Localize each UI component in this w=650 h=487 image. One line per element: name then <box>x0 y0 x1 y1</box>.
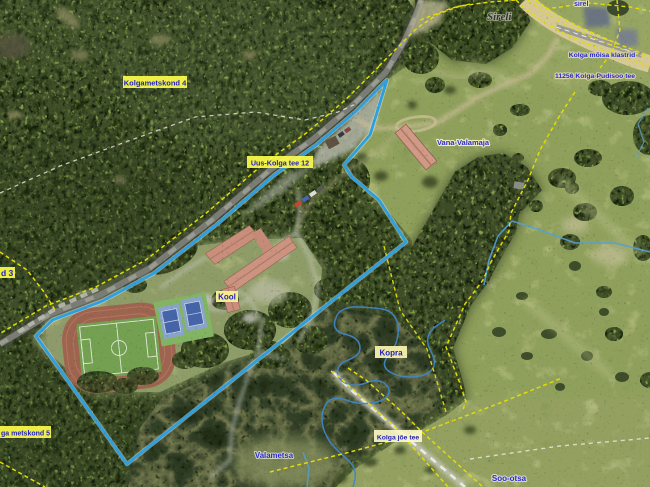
svg-text:sirel: sirel <box>574 1 588 8</box>
svg-text:Kolgametskond 4: Kolgametskond 4 <box>124 79 187 88</box>
svg-text:Sireli: Sireli <box>487 11 512 23</box>
svg-text:11256 Kolga-Pudisoo tee: 11256 Kolga-Pudisoo tee <box>555 73 635 80</box>
svg-text:Soo-otsa: Soo-otsa <box>492 474 527 483</box>
svg-text:Uus-Kolga tee 12: Uus-Kolga tee 12 <box>251 159 309 168</box>
svg-text:Kolga mõisa klastrid: Kolga mõisa klastrid <box>569 52 635 59</box>
svg-text:d 3: d 3 <box>1 268 14 278</box>
svg-text:Vana-Valamaja: Vana-Valamaja <box>437 138 490 147</box>
svg-text:Kolga jõe tee: Kolga jõe tee <box>377 435 420 442</box>
svg-text:ga metskond 5: ga metskond 5 <box>1 431 50 438</box>
svg-text:Valametsa: Valametsa <box>255 451 294 460</box>
svg-text:Kopra: Kopra <box>379 349 403 358</box>
svg-text:Kool: Kool <box>218 293 236 302</box>
